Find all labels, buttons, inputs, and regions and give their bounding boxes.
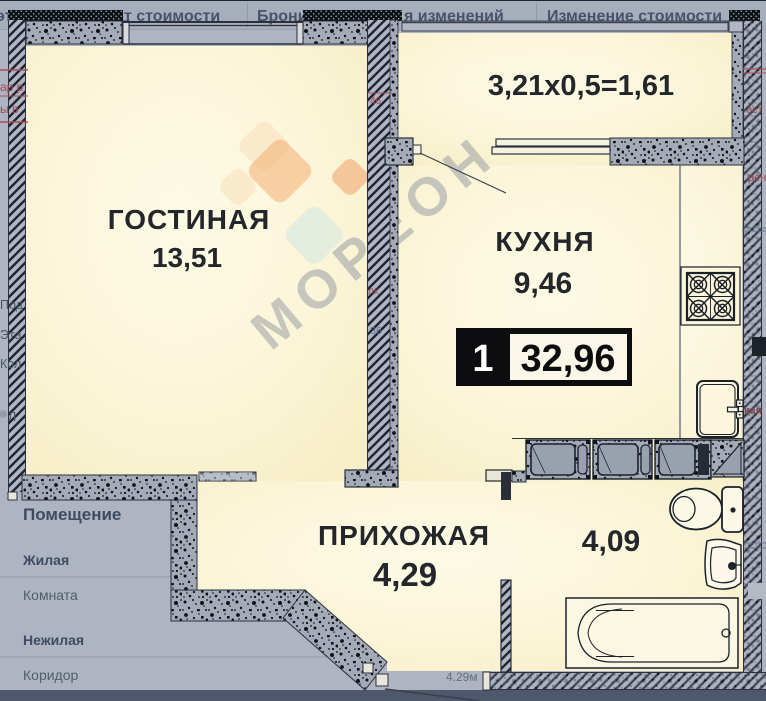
svg-text:КУХНЯ: КУХНЯ — [495, 226, 594, 257]
svg-text:Под: Под — [0, 298, 24, 312]
svg-text:4.29м: 4.29м — [446, 670, 478, 684]
svg-text:1: 1 — [472, 338, 493, 380]
svg-text:Коридор: Коридор — [23, 667, 79, 683]
svg-text:Помещение: Помещение — [23, 505, 121, 524]
svg-text:3,21x0,5=1,61: 3,21x0,5=1,61 — [488, 70, 674, 102]
svg-text:13,51: 13,51 — [152, 242, 222, 273]
svg-text:32,96: 32,96 — [520, 338, 615, 380]
svg-text:Кол: Кол — [0, 357, 21, 371]
svg-text:9,46: 9,46 — [514, 267, 572, 300]
svg-text:4,29: 4,29 — [373, 556, 437, 593]
svg-text:рени: рени — [748, 172, 766, 184]
svg-text:Нежилая: Нежилая — [23, 632, 84, 648]
svg-text:ГОСТИНАЯ: ГОСТИНАЯ — [108, 204, 271, 235]
svg-text:кая: кая — [744, 405, 762, 417]
svg-text:ост: ост — [746, 104, 763, 116]
svg-text:ы в: ы в — [0, 102, 18, 116]
svg-text:Л: Л — [8, 410, 16, 424]
svg-text:Жилая: Жилая — [22, 552, 69, 568]
svg-text:ПРИХОЖАЯ: ПРИХОЖАЯ — [318, 520, 490, 551]
svg-text:Комната: Комната — [23, 587, 78, 603]
svg-text:46: 46 — [370, 96, 382, 107]
svg-text:4,09: 4,09 — [582, 525, 640, 558]
svg-text:Эта: Эта — [0, 328, 22, 342]
svg-text:ар р: ар р — [0, 80, 24, 94]
svg-text:Зб: Зб — [370, 325, 382, 337]
svg-text:лк: лк — [368, 286, 379, 297]
